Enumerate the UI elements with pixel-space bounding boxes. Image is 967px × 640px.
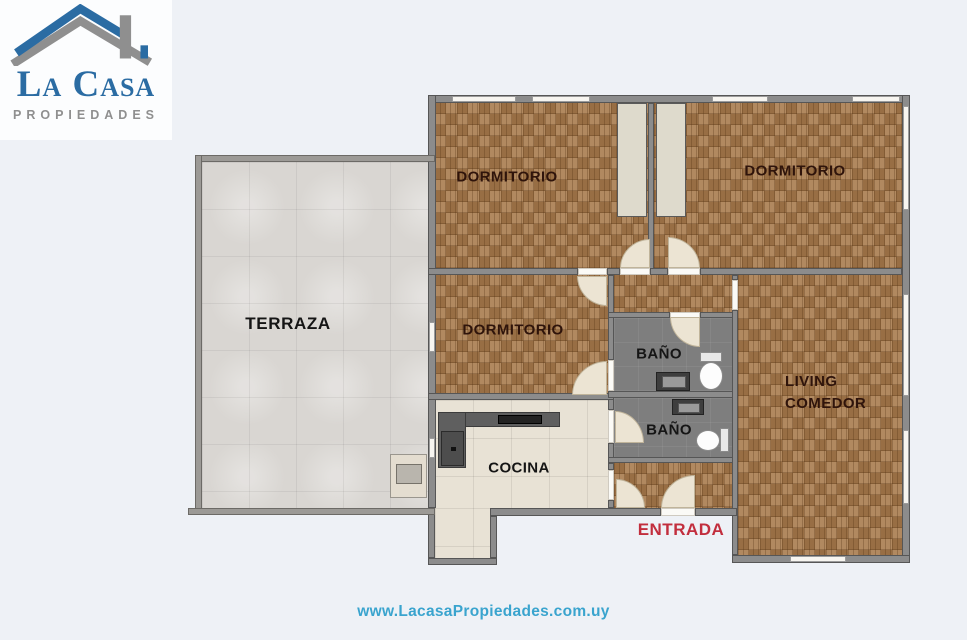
window — [903, 294, 909, 396]
window — [852, 96, 900, 102]
label-bano-1: BAÑO — [636, 346, 682, 363]
fridge-icon — [441, 431, 464, 466]
hallway-floor — [614, 275, 732, 312]
door-opening — [608, 410, 614, 443]
sink-bowl — [662, 376, 686, 388]
door-opening — [578, 268, 607, 275]
terrace-wall — [195, 155, 435, 162]
toilet-icon — [696, 430, 720, 451]
wall — [608, 312, 670, 318]
wall — [608, 457, 738, 463]
toilet-tank — [700, 352, 722, 362]
logo-title: La Casa — [8, 66, 164, 104]
terrace-step-inner — [396, 464, 422, 484]
label-dormitorio-1: DORMITORIO — [456, 169, 557, 186]
website-url-link[interactable]: www.LacasaPropiedades.com.uy — [357, 603, 609, 621]
house-roof-icon — [10, 4, 162, 66]
wall — [695, 508, 737, 516]
label-living-comedor: LIVING COMEDOR — [785, 371, 866, 415]
window — [429, 322, 435, 352]
door-opening — [608, 360, 614, 391]
hall-living-opening — [732, 280, 738, 310]
label-bano-2: BAÑO — [646, 422, 692, 439]
toilet-icon — [699, 362, 723, 390]
room-living-comedor — [738, 275, 902, 555]
wall — [490, 516, 497, 558]
door-opening — [608, 470, 614, 500]
terrace-wall — [188, 508, 435, 515]
window — [790, 556, 846, 562]
label-terraza: TERRAZA — [245, 314, 330, 334]
window — [903, 106, 909, 210]
label-living-line1: LIVING — [785, 371, 866, 393]
wall — [650, 268, 668, 275]
wall — [490, 508, 661, 516]
window — [532, 96, 590, 102]
cocina-bump-out-floor — [435, 508, 490, 558]
label-dormitorio-3: DORMITORIO — [462, 322, 563, 339]
door-opening — [620, 268, 650, 275]
logo: La Casa PROPIEDADES — [0, 0, 172, 140]
terrace-step — [390, 454, 427, 498]
label-cocina: COCINA — [488, 460, 550, 477]
toilet-tank — [720, 428, 729, 452]
wall — [607, 268, 620, 275]
window — [903, 430, 909, 504]
wall — [428, 508, 435, 558]
wall — [608, 391, 738, 398]
wall — [428, 558, 497, 565]
sink-bowl — [678, 403, 700, 413]
label-entrada: ENTRADA — [638, 520, 725, 540]
window — [429, 438, 435, 458]
entrance-opening — [661, 508, 695, 516]
wall — [428, 268, 578, 275]
label-dormitorio-2: DORMITORIO — [744, 163, 845, 180]
label-living-line2: COMEDOR — [785, 393, 866, 415]
closet — [656, 103, 686, 217]
window — [452, 96, 516, 102]
cooktop-icon — [498, 415, 542, 424]
closet — [617, 103, 647, 217]
sink-icon — [656, 372, 690, 391]
fridge-handle — [451, 447, 456, 451]
wall — [608, 463, 614, 470]
door-opening — [668, 268, 700, 275]
terrace-wall — [195, 155, 202, 515]
room-dormitorio-2 — [654, 103, 902, 268]
window — [712, 96, 768, 102]
wall — [732, 310, 738, 555]
sink-icon — [672, 399, 704, 415]
wall — [700, 268, 902, 275]
wall — [608, 500, 614, 508]
logo-subtitle: PROPIEDADES — [8, 108, 164, 122]
